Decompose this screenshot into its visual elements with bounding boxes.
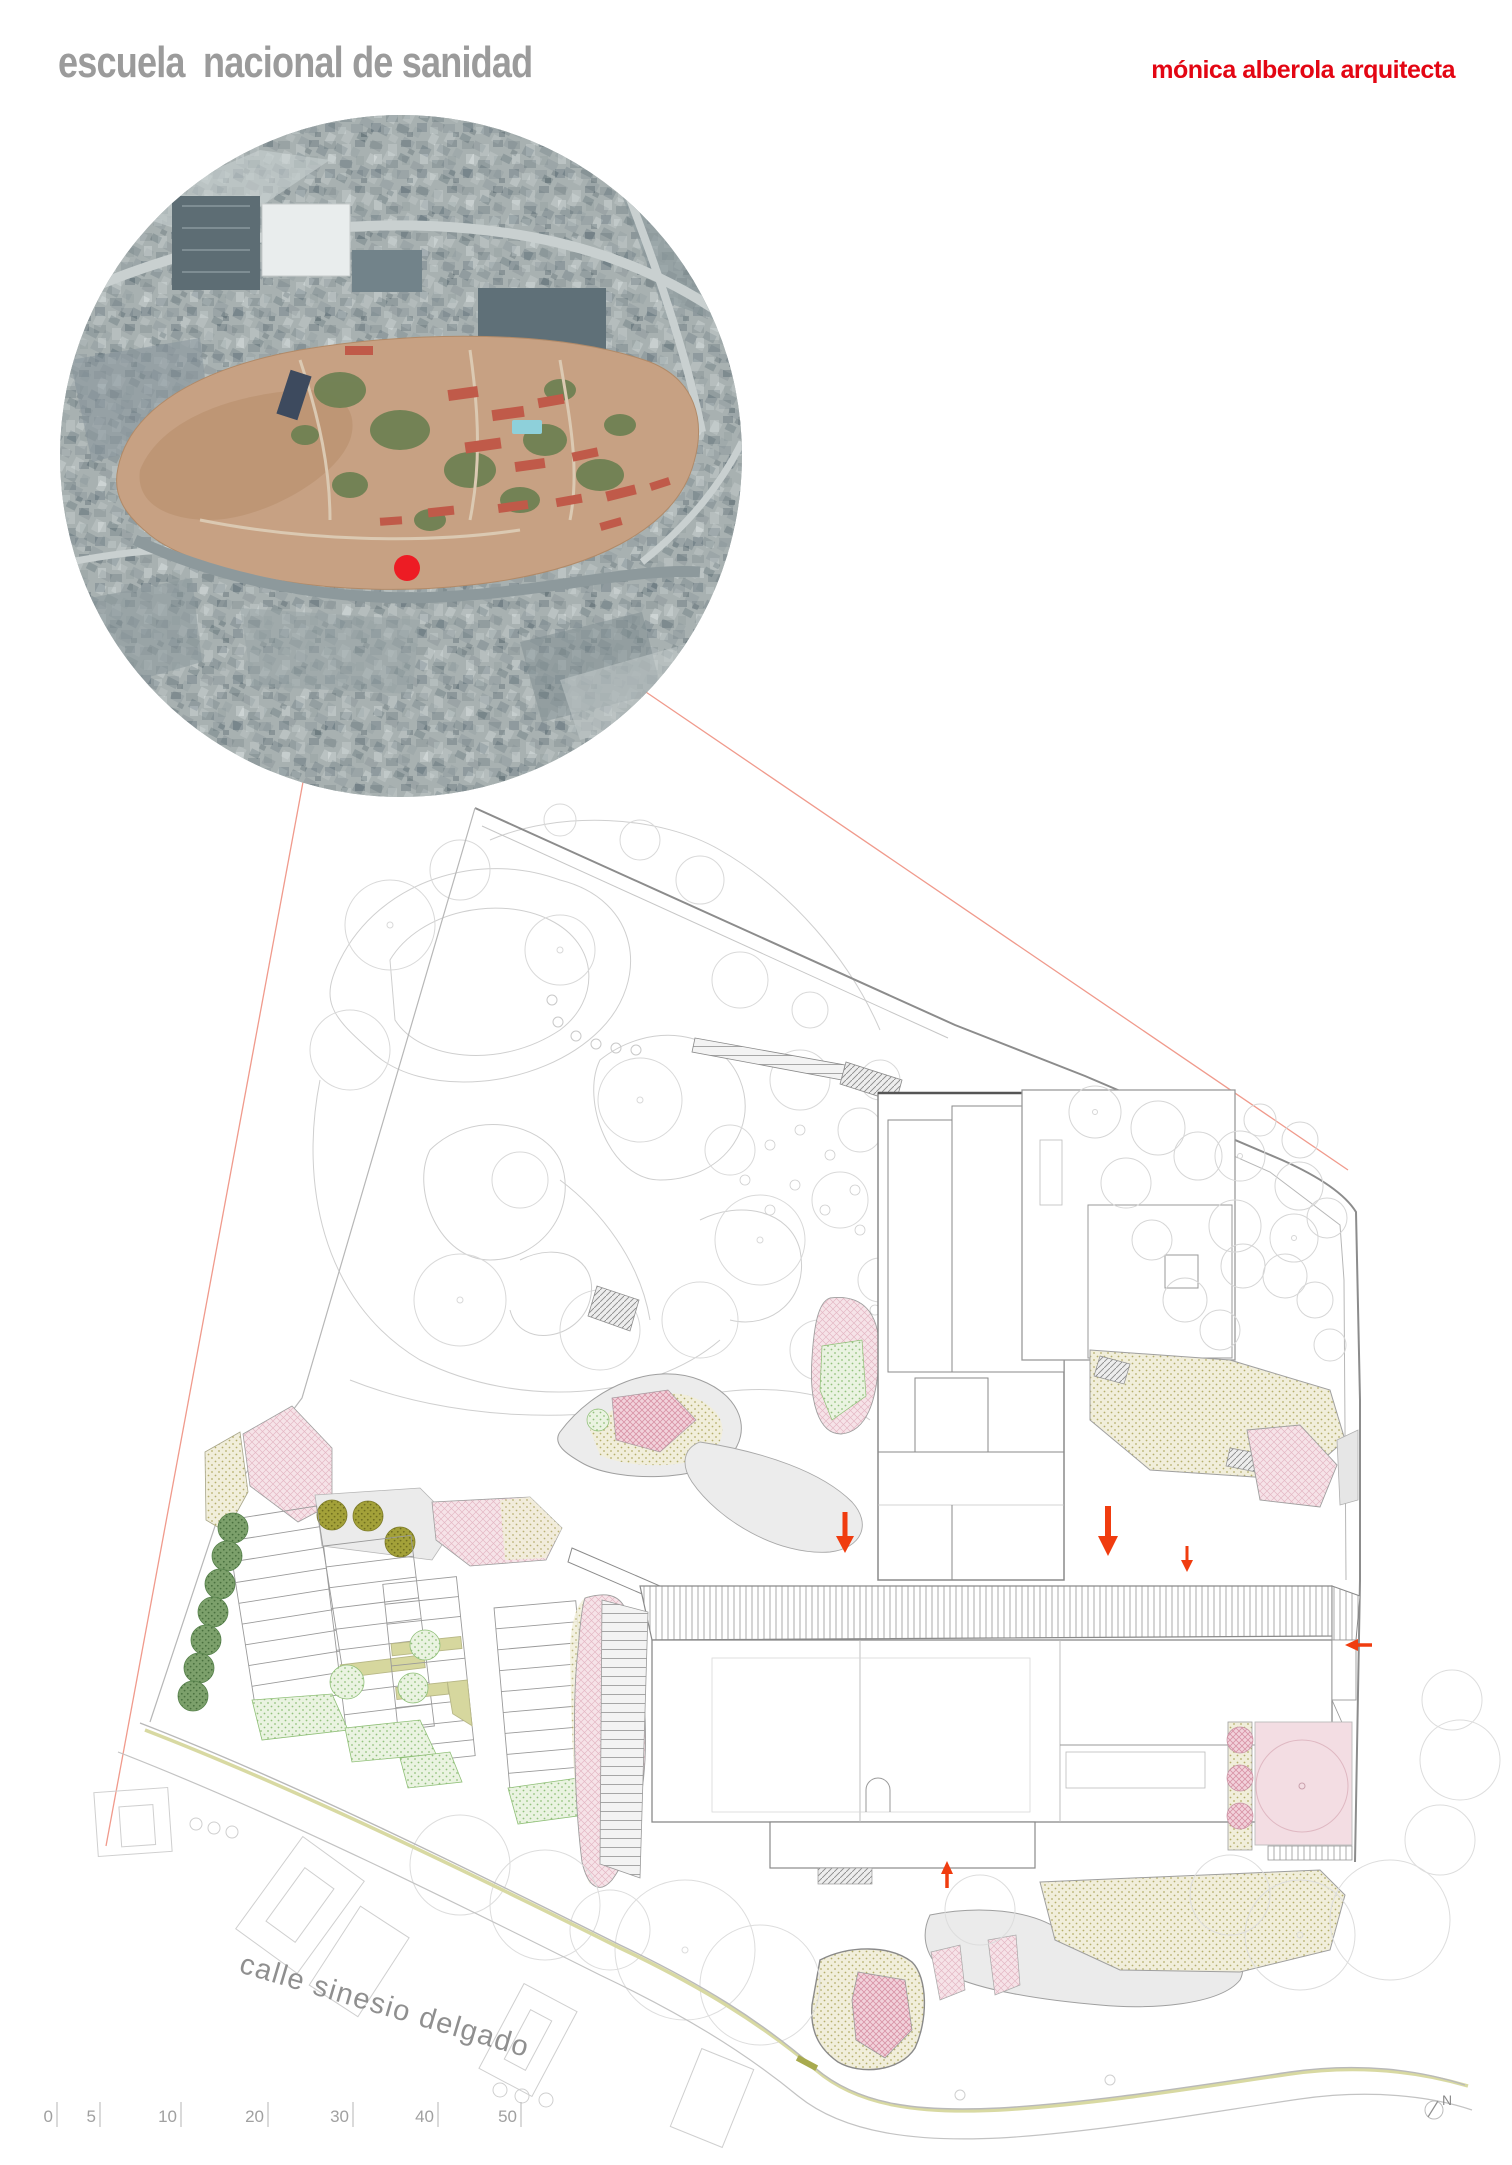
scale-bar: 0 5 10 20 30 40 50 [44, 2102, 521, 2127]
aerial-pool [512, 420, 542, 434]
south-plazas [812, 1870, 1345, 2070]
scale-label-20: 20 [245, 2107, 264, 2126]
scale-label-10: 10 [158, 2107, 177, 2126]
aerial-sports-courts [172, 196, 260, 290]
east-plaza [1227, 1722, 1352, 1860]
north-indicator: N [1425, 2092, 1452, 2119]
site-location-dot [394, 555, 420, 581]
drawing-sheet: escuela nacional de sanidad mónica alber… [0, 0, 1512, 2165]
stairs-hatch [588, 1286, 639, 1331]
main-building-roof [640, 1586, 1332, 1640]
east-terrace [1090, 1350, 1358, 1507]
site-plan-drawing: 0 5 10 20 30 40 50 calle sinesio delgado… [0, 0, 1512, 2165]
entrance-arrow-down-3 [1181, 1546, 1193, 1572]
central-plazas [558, 1286, 879, 1552]
entrance-arrow-down-2 [1098, 1506, 1118, 1556]
north-label: N [1442, 2092, 1452, 2108]
park-contours [313, 820, 880, 1420]
parking-area [178, 1406, 646, 1887]
park-detail-dots [547, 995, 641, 1055]
scale-label-0: 0 [44, 2107, 53, 2126]
site-plan [94, 804, 1500, 2147]
scale-label-50: 50 [498, 2107, 517, 2126]
scale-label-40: 40 [415, 2107, 434, 2126]
north-icon [1425, 2101, 1443, 2119]
street-tree-icons [178, 1513, 248, 1711]
aerial-photo [0, 0, 1011, 1072]
street-label: calle sinesio delgado [236, 1948, 533, 2064]
scale-label-30: 30 [330, 2107, 349, 2126]
scale-label-5: 5 [87, 2107, 96, 2126]
